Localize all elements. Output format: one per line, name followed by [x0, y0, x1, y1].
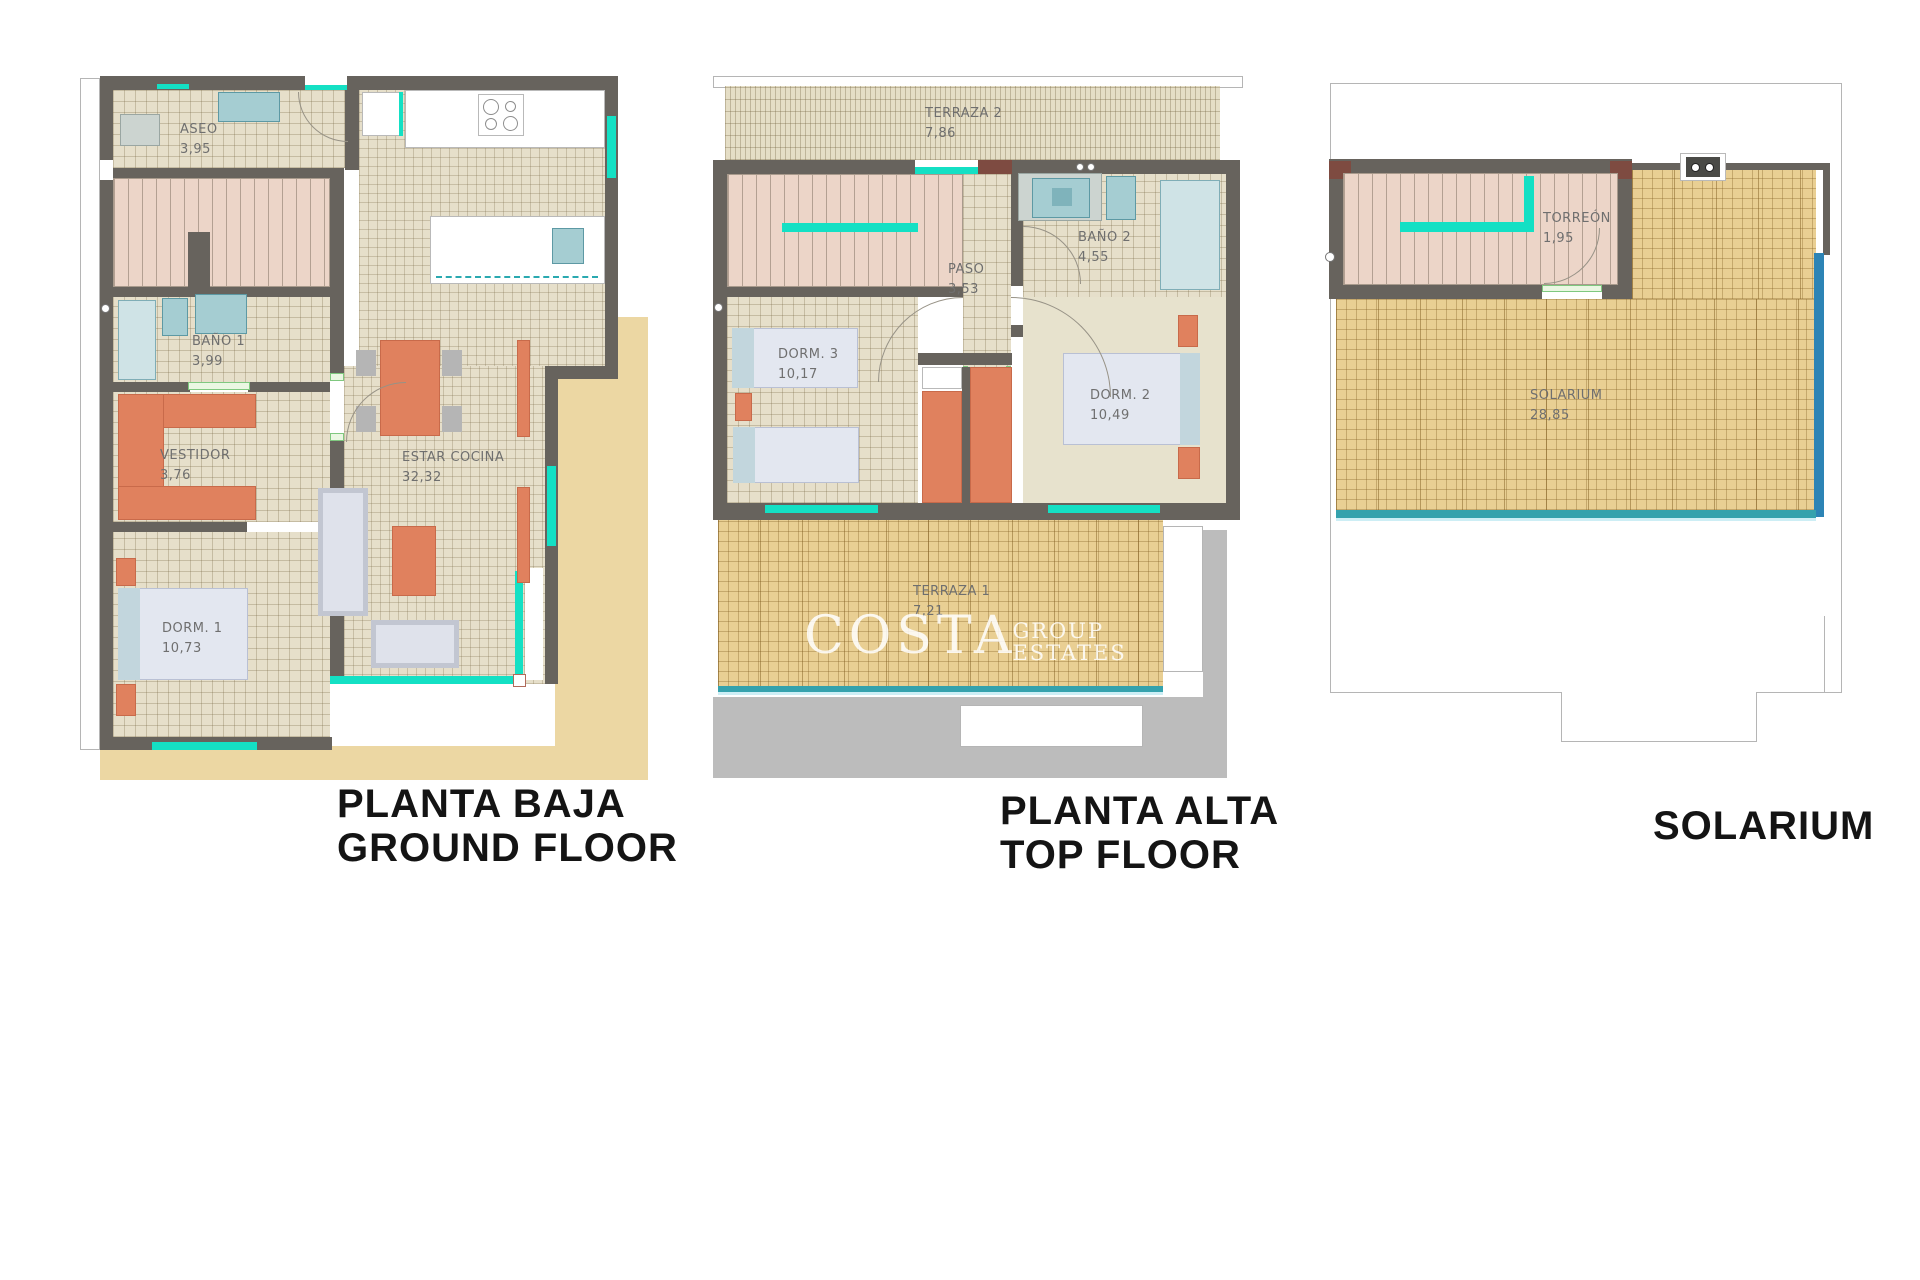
room-label-dorm2: DORM. 210,49	[1090, 386, 1151, 425]
bed-pillow	[1180, 353, 1200, 445]
sink-vanity	[218, 92, 280, 122]
bbq-burner-icon	[1705, 163, 1714, 172]
corner-window-strip	[330, 676, 517, 684]
wall	[918, 353, 1012, 365]
window-gap	[100, 160, 113, 180]
plan-caption-solarium: SOLARIUM	[1653, 804, 1874, 848]
exterior-sill	[80, 78, 100, 750]
room-label-terraza2: TERRAZA 27,86	[925, 104, 1002, 143]
deck-edge-light	[1336, 518, 1816, 521]
nightstand	[116, 684, 136, 716]
window-strip	[765, 505, 878, 513]
fridge	[362, 92, 402, 136]
bathtub	[118, 300, 156, 380]
wardrobe	[922, 391, 962, 503]
deck-edge-rail	[1336, 510, 1816, 518]
burner-icon	[503, 116, 518, 131]
nightstand	[1178, 447, 1200, 479]
window-strip	[152, 742, 257, 750]
entrance-window-strip	[305, 85, 347, 90]
plan-ground-floor: ASEO3,95 BAÑO 13,99 VESTIDOR3,76 DORM. 1…	[100, 76, 648, 846]
plan-caption-ground-floor: PLANTA BAJA GROUND FLOOR	[337, 782, 678, 870]
burner-icon	[505, 101, 516, 112]
door-jamb	[330, 373, 344, 381]
plan-solarium: TORREÓN1,95 SOLARIUM28,85 SOLARIUM	[1324, 76, 1844, 856]
vent-dots	[1076, 163, 1084, 171]
footprint-outline-step	[1561, 692, 1757, 742]
vent-dots	[1087, 163, 1095, 171]
wall	[713, 287, 963, 297]
nightstand	[1178, 315, 1198, 347]
room-label-paso: PASO3,53	[948, 260, 984, 299]
counter-dashed-line	[436, 276, 598, 278]
room-label-vestidor: VESTIDOR3,76	[160, 446, 230, 485]
stair-rail	[1400, 222, 1534, 232]
bed-pillow	[733, 427, 755, 483]
watermark-sub: GROUP ESTATES	[1012, 620, 1126, 664]
window-sill	[525, 568, 543, 680]
wall-point	[714, 303, 723, 312]
sofa	[371, 620, 459, 668]
bed-pillow	[118, 588, 140, 680]
shadow-notch	[960, 705, 1143, 747]
window-strip	[157, 84, 189, 89]
garden-terrace	[100, 746, 560, 780]
sink-drain	[1052, 188, 1072, 206]
plan-top-floor: TERRAZA 27,86 PASO3,53 BAÑO 24,55 DORM. …	[708, 76, 1255, 856]
door-gap	[330, 381, 344, 433]
room-label-solarium: SOLARIUM28,85	[1530, 386, 1603, 425]
window-strip	[1048, 505, 1160, 513]
wall-shelf	[517, 340, 530, 437]
room-label-bano2: BAÑO 24,55	[1078, 228, 1131, 267]
wall	[113, 522, 247, 532]
sofa	[318, 488, 368, 616]
plan-caption-top-floor: PLANTA ALTA TOP FLOOR	[1000, 789, 1279, 877]
room-label-dorm1: DORM. 110,73	[162, 619, 223, 658]
toilet	[162, 298, 188, 336]
room-label-dorm3: DORM. 310,17	[778, 345, 839, 384]
wall-thin	[1823, 163, 1830, 255]
footprint-outline-step	[1787, 616, 1825, 693]
door-jamb	[330, 433, 344, 441]
solarium-deck	[1632, 170, 1816, 299]
bbq-icon	[1686, 157, 1720, 177]
chair	[442, 350, 462, 376]
island-sink	[552, 228, 584, 264]
wall	[113, 382, 190, 392]
window-strip	[547, 466, 556, 546]
window-strip	[607, 116, 616, 178]
chair	[442, 406, 462, 432]
coffee-table	[392, 526, 436, 596]
shower-tray	[1160, 180, 1220, 290]
wall-stub	[188, 232, 210, 287]
wall	[962, 367, 970, 503]
corner-window-strip	[515, 571, 523, 674]
floorplan-sheet: { "palette": { "wall": "#67635d", "windo…	[0, 0, 1920, 1280]
door-jamb	[188, 382, 250, 390]
glass-rail	[1814, 253, 1824, 517]
burner-icon	[485, 118, 497, 130]
wardrobe	[118, 486, 256, 520]
wall	[1226, 160, 1240, 520]
costa-group-estates-watermark: COSTA GROUP ESTATES	[804, 612, 1127, 664]
wall	[713, 160, 727, 520]
window-sill	[330, 686, 526, 704]
room-label-estar-cocina: ESTAR COCINA32,32	[402, 448, 504, 487]
wardrobe	[970, 367, 1012, 503]
bbq-burner-icon	[1691, 163, 1700, 172]
bed-pillow	[732, 328, 754, 388]
room-label-torreon: TORREÓN1,95	[1543, 209, 1611, 248]
nightstand	[735, 393, 752, 421]
room-label-bano1: BAÑO 13,99	[192, 332, 245, 371]
sink-vanity	[195, 294, 247, 334]
washing-machine	[120, 114, 160, 146]
wall-thin	[1632, 163, 1830, 170]
wall-shelf	[517, 487, 530, 583]
wall	[113, 168, 344, 178]
wall-point	[101, 304, 110, 313]
fridge-edge	[399, 92, 403, 136]
watermark-main: COSTA	[804, 612, 1016, 661]
room-label-aseo: ASEO3,95	[180, 120, 218, 159]
door-jamb	[1542, 285, 1602, 292]
toilet	[1106, 176, 1136, 220]
window-strip	[915, 167, 978, 174]
closet-shelf	[922, 367, 962, 389]
terrace-rail-light	[718, 692, 1163, 695]
burner-icon	[483, 99, 499, 115]
corner-post	[513, 674, 526, 687]
garden-terrace	[555, 317, 648, 780]
window-gap	[915, 160, 978, 167]
staircase	[113, 178, 330, 287]
wall-point	[1325, 252, 1335, 262]
hob	[478, 94, 524, 136]
terrace-step	[1163, 526, 1203, 672]
stair-rail	[782, 223, 918, 232]
chair	[356, 350, 376, 376]
nightstand	[116, 558, 136, 586]
